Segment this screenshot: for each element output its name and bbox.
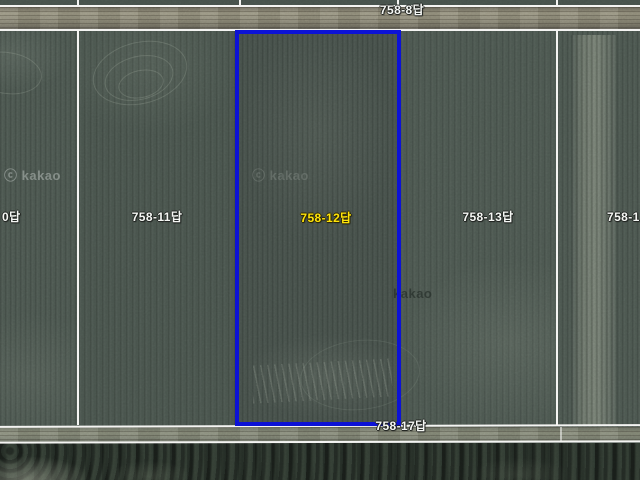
road-top (0, 7, 640, 29)
parcel-label-left-partial: 0답 (2, 210, 21, 224)
boundary-line-left-vertical (77, 31, 79, 425)
parcel-label-758-12-selected: 758-12답 (300, 211, 351, 225)
map-canvas[interactable]: ⓒ kakao ⓒ kakao kakao 758-8답 0답 758-11답 … (0, 0, 640, 480)
parcel-label-758-13: 758-13답 (462, 210, 513, 224)
boundary-tick (77, 0, 79, 6)
kakao-watermark: ⓒ kakao (4, 165, 61, 184)
parcel-label-right-partial: 758-1 (607, 210, 640, 224)
ploughed-strip-texture (571, 35, 617, 425)
boundary-tick (556, 0, 558, 6)
boundary-tick (560, 427, 562, 441)
boundary-tick (239, 0, 241, 6)
tree-band (0, 443, 640, 480)
parcel-label-758-8: 758-8답 (380, 3, 424, 17)
boundary-line-right-vertical (556, 31, 558, 425)
parcel-label-758-17: 758-17답 (375, 419, 426, 433)
boundary-line-top (0, 5, 640, 7)
selected-parcel-outline[interactable] (235, 30, 401, 426)
parcel-label-758-11: 758-11답 (132, 210, 183, 224)
